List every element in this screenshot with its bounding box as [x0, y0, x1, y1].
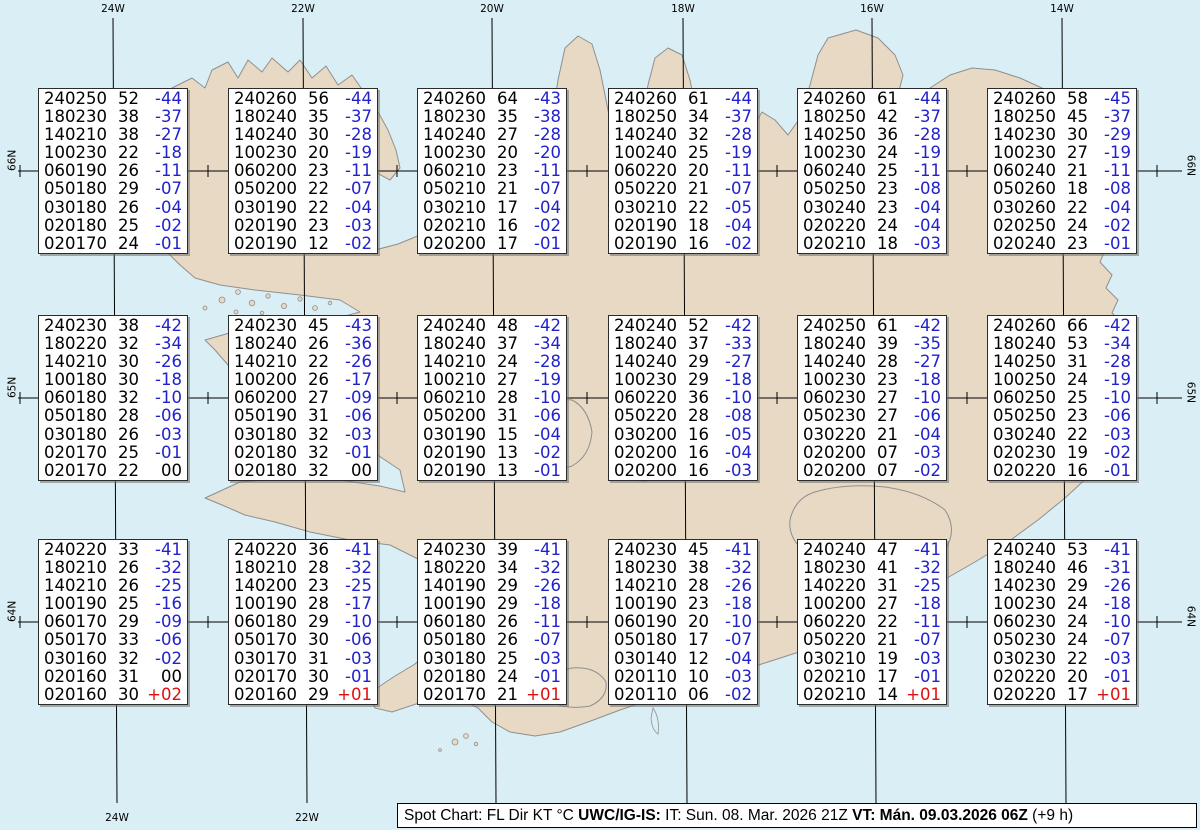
spot-row: 18023038-37 [44, 108, 182, 126]
spot-row: 05018028-06 [44, 407, 182, 425]
spot-row: 14025031-28 [993, 353, 1131, 371]
spot-row: 10020026-17 [234, 371, 372, 389]
spot-row: 02018024-01 [423, 668, 561, 686]
flight-level-direction: 050260 [993, 180, 1057, 198]
latitude-label: 64N [1185, 606, 1197, 627]
temperature-c: -01 [525, 235, 561, 253]
temperature-c: -27 [716, 353, 752, 371]
flight-level-direction: 020200 [423, 235, 487, 253]
spot-row: 05021021-07 [423, 180, 561, 198]
spot-row: 02017021+01 [423, 686, 561, 704]
spot-row: 02019016-02 [614, 235, 752, 253]
wind-speed-kt: 27 [874, 389, 898, 407]
spot-row: 02022016-01 [993, 462, 1131, 480]
flight-level-direction: 240240 [803, 541, 867, 559]
temperature-c: -28 [716, 126, 752, 144]
wind-speed-kt: 24 [1064, 631, 1088, 649]
spot-data-box: 24022033-4118021026-3214021026-251001902… [38, 539, 188, 705]
wind-speed-kt: 22 [1064, 199, 1088, 217]
spot-row: 02018025-02 [44, 217, 182, 235]
legend-text-segment: Spot Chart: FL Dir KT °C [404, 807, 578, 825]
longitude-label: 18W [671, 3, 695, 15]
temperature-c: -11 [525, 613, 561, 631]
spot-row: 14024030-28 [234, 126, 372, 144]
flight-level-direction: 020160 [44, 668, 108, 686]
spot-row: 02021018-03 [803, 235, 941, 253]
wind-speed-kt: 45 [685, 541, 709, 559]
wind-speed-kt: 26 [494, 631, 518, 649]
wind-speed-kt: 07 [874, 462, 898, 480]
temperature-c: -42 [146, 317, 182, 335]
wind-speed-kt: 39 [874, 335, 898, 353]
spot-data-box: 24023045-4118023038-3214021028-261001902… [608, 539, 758, 705]
wind-speed-kt: 29 [115, 613, 139, 631]
flight-level-direction: 140240 [614, 126, 678, 144]
wind-speed-kt: 30 [305, 126, 329, 144]
temperature-c: -02 [1095, 217, 1131, 235]
spot-row: 24023039-41 [423, 541, 561, 559]
flight-level-direction: 060190 [44, 162, 108, 180]
temperature-c: -25 [146, 577, 182, 595]
spot-row: 10019023-18 [614, 595, 752, 613]
wind-speed-kt: 35 [305, 108, 329, 126]
wind-speed-kt: 18 [1064, 180, 1088, 198]
flight-level-direction: 100190 [614, 595, 678, 613]
flight-level-direction: 180240 [423, 335, 487, 353]
wind-speed-kt: 24 [494, 353, 518, 371]
wind-speed-kt: 24 [874, 144, 898, 162]
wind-speed-kt: 32 [305, 444, 329, 462]
flight-level-direction: 180230 [803, 559, 867, 577]
temperature-c: -01 [1095, 668, 1131, 686]
wind-speed-kt: 27 [1064, 144, 1088, 162]
flight-level-direction: 100230 [234, 144, 298, 162]
flight-level-direction: 020220 [993, 668, 1057, 686]
flight-level-direction: 180210 [44, 559, 108, 577]
spot-row: 06024021-11 [993, 162, 1131, 180]
spot-row: 10023020-19 [234, 144, 372, 162]
flight-level-direction: 180250 [993, 108, 1057, 126]
flight-level-direction: 050180 [44, 407, 108, 425]
spot-row: 18023041-32 [803, 559, 941, 577]
temperature-c: -19 [1095, 144, 1131, 162]
temperature-c: -01 [525, 668, 561, 686]
temperature-c: -04 [716, 444, 752, 462]
spot-row: 06021023-11 [423, 162, 561, 180]
spot-row: 24024052-42 [614, 317, 752, 335]
legend-text-segment: VT: Mán. 09.03.2026 06Z [852, 807, 1028, 825]
temperature-c: -06 [905, 407, 941, 425]
spot-data-box: 24024053-4118024046-3114023029-261002302… [987, 539, 1137, 705]
spot-row: 14024032-28 [614, 126, 752, 144]
wind-speed-kt: 31 [305, 650, 329, 668]
temperature-c: -42 [1095, 317, 1131, 335]
wind-speed-kt: 28 [874, 353, 898, 371]
temperature-c: -18 [716, 595, 752, 613]
wind-speed-kt: 26 [305, 335, 329, 353]
flight-level-direction: 020210 [423, 217, 487, 235]
spot-row: 10025024-19 [993, 371, 1131, 389]
flight-level-direction: 030180 [44, 426, 108, 444]
spot-row: 05020031-06 [423, 407, 561, 425]
flight-level-direction: 020250 [993, 217, 1057, 235]
spot-row: 18024046-31 [993, 559, 1131, 577]
spot-row: 10023027-19 [993, 144, 1131, 162]
temperature-c: -26 [1095, 577, 1131, 595]
temperature-c: -02 [1095, 444, 1131, 462]
flight-level-direction: 020190 [614, 235, 678, 253]
wind-speed-kt: 23 [305, 162, 329, 180]
temperature-c: -02 [716, 235, 752, 253]
spot-row: 14021028-26 [614, 577, 752, 595]
wind-speed-kt: 58 [1064, 90, 1088, 108]
spot-row: 10023029-18 [614, 371, 752, 389]
wind-speed-kt: 30 [115, 371, 139, 389]
flight-level-direction: 020190 [614, 217, 678, 235]
flight-level-direction: 020110 [614, 668, 678, 686]
spot-row: 14023029-26 [993, 577, 1131, 595]
spot-row: 18022034-32 [423, 559, 561, 577]
flight-level-direction: 050220 [803, 631, 867, 649]
spot-data-box: 24026058-4518025045-3714023030-291002302… [987, 88, 1137, 254]
wind-speed-kt: 53 [1064, 335, 1088, 353]
temperature-c: -43 [525, 90, 561, 108]
temperature-c: -41 [905, 541, 941, 559]
wind-speed-kt: 16 [685, 426, 709, 444]
legend-text-segment: UWC/IG-IS: [578, 807, 661, 825]
spot-row: 14019029-26 [423, 577, 561, 595]
flight-level-direction: 060190 [614, 613, 678, 631]
temperature-c: -44 [905, 90, 941, 108]
flight-level-direction: 020200 [803, 462, 867, 480]
wind-speed-kt: 32 [115, 650, 139, 668]
temperature-c: -07 [716, 180, 752, 198]
flight-level-direction: 030220 [803, 426, 867, 444]
wind-speed-kt: 33 [115, 631, 139, 649]
temperature-c: -02 [905, 462, 941, 480]
spot-row: 18024039-35 [803, 335, 941, 353]
latitude-label: 64N [7, 601, 19, 622]
flight-level-direction: 240260 [614, 90, 678, 108]
spot-row: 24026061-44 [803, 90, 941, 108]
longitude-label: 22W [291, 3, 315, 15]
temperature-c: -04 [905, 199, 941, 217]
spot-row: 02011010-03 [614, 668, 752, 686]
temperature-c: -32 [336, 559, 372, 577]
flight-level-direction: 030140 [614, 650, 678, 668]
spot-row: 03023022-03 [993, 650, 1131, 668]
flight-level-direction: 020190 [234, 235, 298, 253]
flight-level-direction: 020170 [44, 235, 108, 253]
wind-speed-kt: 61 [874, 90, 898, 108]
temperature-c: -18 [146, 371, 182, 389]
flight-level-direction: 060240 [803, 162, 867, 180]
wind-speed-kt: 30 [305, 668, 329, 686]
flight-level-direction: 030180 [423, 650, 487, 668]
spot-row: 18024026-36 [234, 335, 372, 353]
temperature-c: -03 [146, 426, 182, 444]
flight-level-direction: 100230 [993, 144, 1057, 162]
temperature-c: -45 [1095, 90, 1131, 108]
temperature-c: -37 [716, 108, 752, 126]
temperature-c: -06 [336, 407, 372, 425]
temperature-c: -03 [336, 217, 372, 235]
spot-row: 14020023-25 [234, 577, 372, 595]
flight-level-direction: 020240 [993, 235, 1057, 253]
spot-row: 18025042-37 [803, 108, 941, 126]
temperature-c: -08 [1095, 180, 1131, 198]
wind-speed-kt: 36 [685, 389, 709, 407]
wind-speed-kt: 48 [494, 317, 518, 335]
longitude-label: 16W [860, 3, 884, 15]
spot-row: 18021028-32 [234, 559, 372, 577]
temperature-c: -11 [146, 162, 182, 180]
spot-row: 24024053-41 [993, 541, 1131, 559]
wind-speed-kt: 37 [685, 335, 709, 353]
wind-speed-kt: 56 [305, 90, 329, 108]
flight-level-direction: 020180 [234, 444, 298, 462]
temperature-c: -03 [336, 426, 372, 444]
flight-level-direction: 240240 [993, 541, 1057, 559]
flight-level-direction: 240230 [423, 541, 487, 559]
flight-level-direction: 030210 [614, 199, 678, 217]
wind-speed-kt: 24 [1064, 613, 1088, 631]
spot-row: 0201803200 [234, 462, 372, 480]
temperature-c: -34 [525, 335, 561, 353]
wind-speed-kt: 31 [115, 668, 139, 686]
flight-level-direction: 100230 [993, 595, 1057, 613]
wind-speed-kt: 52 [685, 317, 709, 335]
spot-row: 05022021-07 [614, 180, 752, 198]
spot-data-box: 24025052-4418023038-3714021038-271002302… [38, 88, 188, 254]
wind-speed-kt: 24 [1064, 371, 1088, 389]
flight-level-direction: 030240 [993, 426, 1057, 444]
spot-row: 03017031-03 [234, 650, 372, 668]
flight-level-direction: 140250 [803, 126, 867, 144]
spot-row: 02016029+01 [234, 686, 372, 704]
wind-speed-kt: 23 [305, 217, 329, 235]
temperature-c: -01 [336, 444, 372, 462]
wind-speed-kt: 18 [874, 235, 898, 253]
spot-row: 03018026-04 [44, 199, 182, 217]
wind-speed-kt: 24 [1064, 595, 1088, 613]
temperature-c: -26 [716, 577, 752, 595]
flight-level-direction: 100190 [234, 595, 298, 613]
spot-row: 18022032-34 [44, 335, 182, 353]
spot-row: 14024028-27 [803, 353, 941, 371]
wind-speed-kt: 17 [685, 631, 709, 649]
wind-speed-kt: 23 [1064, 235, 1088, 253]
spot-row: 14025036-28 [803, 126, 941, 144]
flight-level-direction: 240250 [803, 317, 867, 335]
flight-level-direction: 180230 [614, 559, 678, 577]
wind-speed-kt: 27 [874, 595, 898, 613]
flight-level-direction: 140240 [423, 126, 487, 144]
spot-row: 10019028-17 [234, 595, 372, 613]
flight-level-direction: 030170 [234, 650, 298, 668]
flight-level-direction: 050180 [423, 631, 487, 649]
spot-row: 05018017-07 [614, 631, 752, 649]
temperature-c: -18 [905, 595, 941, 613]
flight-level-direction: 060200 [234, 162, 298, 180]
temperature-c: -03 [716, 668, 752, 686]
temperature-c: -41 [146, 541, 182, 559]
spot-row: 24026061-44 [614, 90, 752, 108]
flight-level-direction: 180210 [234, 559, 298, 577]
wind-speed-kt: 20 [685, 162, 709, 180]
temperature-c: -42 [905, 317, 941, 335]
wind-speed-kt: 31 [874, 577, 898, 595]
wind-speed-kt: 26 [115, 559, 139, 577]
temperature-c: -03 [1095, 650, 1131, 668]
spot-row: 02023019-02 [993, 444, 1131, 462]
flight-level-direction: 030160 [44, 650, 108, 668]
flight-level-direction: 180230 [44, 108, 108, 126]
spot-row: 06019020-10 [614, 613, 752, 631]
temperature-c: -26 [525, 577, 561, 595]
temperature-c: -01 [146, 444, 182, 462]
wind-speed-kt: 41 [874, 559, 898, 577]
flight-level-direction: 020180 [423, 668, 487, 686]
temperature-c: -03 [905, 650, 941, 668]
wind-speed-kt: 32 [685, 126, 709, 144]
wind-speed-kt: 24 [494, 668, 518, 686]
wind-speed-kt: 25 [1064, 389, 1088, 407]
wind-speed-kt: 36 [874, 126, 898, 144]
spot-row: 03014012-04 [614, 650, 752, 668]
temperature-c: -26 [146, 353, 182, 371]
wind-speed-kt: 61 [685, 90, 709, 108]
flight-level-direction: 050220 [614, 407, 678, 425]
spot-row: 02021016-02 [423, 217, 561, 235]
temperature-c: -34 [1095, 335, 1131, 353]
spot-row: 02017030-01 [234, 668, 372, 686]
spot-row: 02017025-01 [44, 444, 182, 462]
spot-row: 02022024-04 [803, 217, 941, 235]
spot-row: 03021022-05 [614, 199, 752, 217]
wind-speed-kt: 13 [494, 444, 518, 462]
spot-row: 05022021-07 [803, 631, 941, 649]
temperature-c: -20 [525, 144, 561, 162]
flight-level-direction: 140240 [614, 353, 678, 371]
temperature-c: -10 [1095, 613, 1131, 631]
temperature-c: -11 [716, 162, 752, 180]
spot-row: 03022021-04 [803, 426, 941, 444]
wind-speed-kt: 52 [115, 90, 139, 108]
temperature-c: -36 [336, 335, 372, 353]
wind-speed-kt: 25 [115, 595, 139, 613]
wind-speed-kt: 29 [305, 686, 329, 704]
vestmannaeyjar-islands [439, 734, 478, 752]
temperature-c: -11 [905, 162, 941, 180]
latitude-label: 65N [1185, 382, 1197, 403]
flight-level-direction: 020180 [44, 217, 108, 235]
spot-row: 05023024-07 [993, 631, 1131, 649]
temperature-c: -07 [525, 180, 561, 198]
flight-level-direction: 030180 [44, 199, 108, 217]
spot-row: 24023045-41 [614, 541, 752, 559]
wind-speed-kt: 13 [494, 462, 518, 480]
flight-level-direction: 180240 [234, 335, 298, 353]
flight-level-direction: 060180 [423, 613, 487, 631]
wind-speed-kt: 66 [1064, 317, 1088, 335]
longitude-label: 20W [480, 3, 504, 15]
temperature-c: -01 [525, 462, 561, 480]
wind-speed-kt: 29 [494, 595, 518, 613]
spot-row: 18024037-34 [423, 335, 561, 353]
temperature-c: -38 [525, 108, 561, 126]
spot-row: 10023022-18 [44, 144, 182, 162]
wind-speed-kt: 07 [874, 444, 898, 462]
temperature-c: -04 [716, 217, 752, 235]
temperature-c: +01 [905, 686, 941, 704]
flight-level-direction: 100180 [44, 371, 108, 389]
wind-speed-kt: 38 [115, 108, 139, 126]
flight-level-direction: 240230 [614, 541, 678, 559]
flight-level-direction: 180240 [803, 335, 867, 353]
spot-row: 02020007-03 [803, 444, 941, 462]
spot-row: 24022036-41 [234, 541, 372, 559]
temperature-c: -32 [525, 559, 561, 577]
flight-level-direction: 050250 [993, 407, 1057, 425]
flight-level-direction: 030190 [423, 426, 487, 444]
spot-row: 05019031-06 [234, 407, 372, 425]
temperature-c: -43 [336, 317, 372, 335]
spot-row: 05018026-07 [423, 631, 561, 649]
latitude-label: 65N [7, 377, 19, 398]
spot-row: 06018032-10 [44, 389, 182, 407]
temperature-c: -25 [336, 577, 372, 595]
wind-speed-kt: 24 [874, 217, 898, 235]
flight-level-direction: 140200 [234, 577, 298, 595]
wind-speed-kt: 18 [685, 217, 709, 235]
temperature-c: -04 [525, 426, 561, 444]
spot-row: 06022020-11 [614, 162, 752, 180]
wind-speed-kt: 22 [305, 199, 329, 217]
flight-level-direction: 180250 [614, 108, 678, 126]
temperature-c: -19 [1095, 371, 1131, 389]
spot-data-box: 24026066-4218024053-3414025031-281002502… [987, 315, 1137, 481]
temperature-c: -19 [525, 371, 561, 389]
flight-level-direction: 100190 [44, 595, 108, 613]
temperature-c: -01 [1095, 462, 1131, 480]
temperature-c: -32 [716, 559, 752, 577]
wind-speed-kt: 21 [494, 686, 518, 704]
spot-row: 02024023-01 [993, 235, 1131, 253]
flight-level-direction: 030200 [614, 426, 678, 444]
wind-speed-kt: 31 [1064, 353, 1088, 371]
flight-level-direction: 180240 [614, 335, 678, 353]
spot-row: 02019018-04 [614, 217, 752, 235]
wind-speed-kt: 61 [874, 317, 898, 335]
wind-speed-kt: 32 [115, 335, 139, 353]
wind-speed-kt: 26 [305, 371, 329, 389]
spot-row: 02020017-01 [423, 235, 561, 253]
temperature-c: -10 [716, 389, 752, 407]
wind-speed-kt: 12 [305, 235, 329, 253]
temperature-c: -37 [1095, 108, 1131, 126]
temperature-c: -11 [336, 162, 372, 180]
temperature-c: -42 [525, 317, 561, 335]
temperature-c: -04 [1095, 199, 1131, 217]
flight-level-direction: 100200 [803, 595, 867, 613]
legend-text-segment: IT: Sun. 08. Mar. 2026 21Z [661, 807, 852, 825]
longitude-label: 22W [295, 812, 319, 824]
temperature-c: -04 [905, 217, 941, 235]
wind-speed-kt: 17 [1064, 686, 1088, 704]
wind-speed-kt: 22 [305, 180, 329, 198]
wind-speed-kt: 21 [685, 180, 709, 198]
